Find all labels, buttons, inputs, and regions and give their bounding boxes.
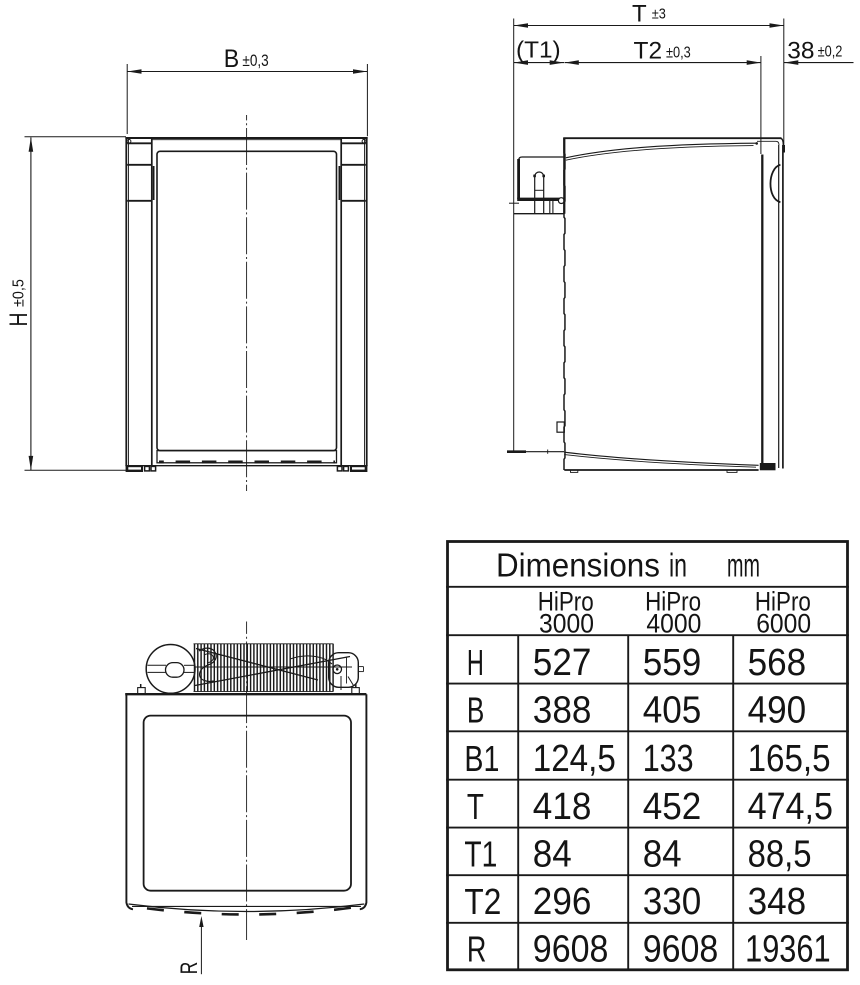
svg-text:348: 348	[748, 880, 807, 923]
svg-text:474,5: 474,5	[748, 784, 833, 827]
svg-text:Dimensions: Dimensions	[496, 547, 660, 584]
svg-text:388: 388	[533, 688, 592, 731]
svg-text:H: H	[467, 643, 484, 683]
svg-text:3000: 3000	[539, 610, 594, 639]
svg-text:T1: T1	[464, 834, 497, 874]
svg-text:in: in	[669, 547, 687, 584]
svg-text:9608: 9608	[533, 927, 609, 970]
svg-text:568: 568	[748, 641, 807, 684]
svg-text:527: 527	[533, 641, 592, 684]
svg-text:B1: B1	[464, 739, 499, 779]
svg-text:B: B	[224, 45, 239, 73]
svg-text:84: 84	[533, 832, 572, 875]
svg-text:H: H	[4, 313, 32, 327]
svg-text:6000: 6000	[756, 610, 811, 639]
svg-text:88,5: 88,5	[748, 832, 812, 875]
svg-text:559: 559	[643, 641, 702, 684]
svg-text:T2: T2	[634, 38, 663, 65]
svg-text:±0,2: ±0,2	[818, 43, 843, 61]
svg-text:452: 452	[643, 785, 702, 828]
svg-text:133: 133	[643, 738, 694, 780]
svg-text:418: 418	[533, 785, 592, 828]
svg-text:84: 84	[643, 832, 682, 875]
svg-text:mm: mm	[727, 546, 760, 584]
svg-text:±0,3: ±0,3	[242, 52, 268, 71]
svg-text:38: 38	[787, 38, 814, 65]
svg-text:R: R	[175, 962, 203, 975]
svg-text:490: 490	[748, 688, 807, 731]
svg-text:4000: 4000	[646, 610, 701, 639]
svg-text:296: 296	[533, 880, 592, 923]
svg-text:124,5: 124,5	[533, 737, 616, 780]
svg-text:405: 405	[643, 688, 702, 731]
svg-text:165,5: 165,5	[748, 737, 831, 780]
svg-text:B: B	[467, 691, 484, 731]
svg-text:T2: T2	[464, 882, 501, 922]
svg-text:±0,3: ±0,3	[666, 44, 691, 62]
svg-text:(T1): (T1)	[516, 38, 561, 63]
svg-text:330: 330	[643, 880, 702, 923]
svg-text:R: R	[467, 929, 486, 970]
svg-text:T: T	[467, 786, 484, 826]
svg-text:T: T	[632, 0, 647, 27]
svg-text:9608: 9608	[643, 927, 719, 970]
svg-text:±0,5: ±0,5	[10, 279, 28, 307]
svg-text:±3: ±3	[652, 6, 666, 22]
svg-text:19361: 19361	[745, 929, 830, 971]
